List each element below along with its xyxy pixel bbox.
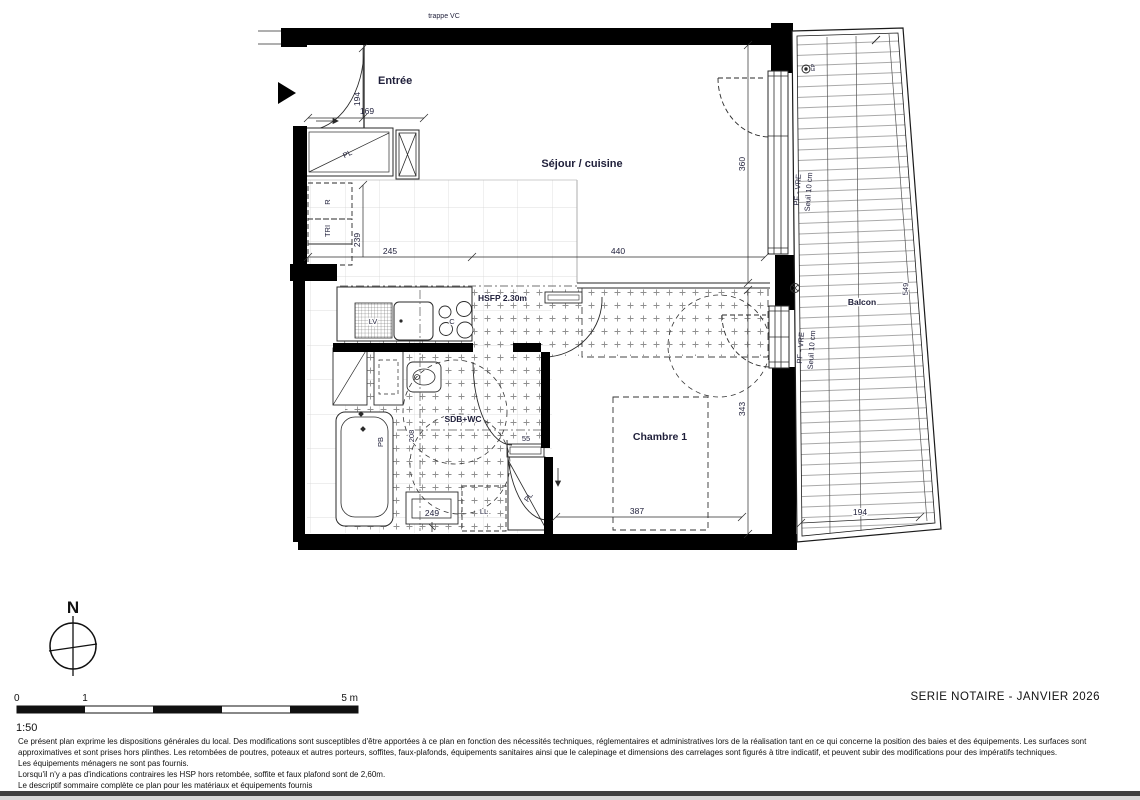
balcony-deck xyxy=(797,33,935,536)
wall-bathroom-east xyxy=(541,352,550,448)
disclaimer: Ce présent plan exprime les dispositions… xyxy=(18,737,1087,790)
scale-ratio: 1:50 xyxy=(16,722,37,734)
dim-440: 440 xyxy=(611,246,625,256)
cooktop-label: C xyxy=(449,317,455,326)
wall-east-pillar-top xyxy=(771,23,793,73)
scale-bar: 0 1 5 m 1:50 xyxy=(14,693,358,734)
dim-239: 239 xyxy=(352,233,362,247)
room-label-chambre: Chambre 1 xyxy=(633,431,687,443)
scale-5m: 5 m xyxy=(341,693,358,704)
north-compass xyxy=(49,616,97,676)
floor-plan-canvas: trappe VC Entrée Séjour / cuisine SDB+WC… xyxy=(0,0,1140,800)
balcony xyxy=(791,28,942,542)
window-chambre xyxy=(769,306,789,368)
page-edge-bar xyxy=(0,791,1140,796)
disclaimer-line-4: Lorsqu'il n'y a pas d'indications contra… xyxy=(18,770,385,779)
tri-label: TRI xyxy=(323,225,332,237)
washing-machine-label: LL xyxy=(480,507,488,516)
washbasin-cabinet xyxy=(374,348,403,405)
wall-west-upper xyxy=(293,126,307,277)
dim-194-balcon: 194 xyxy=(853,507,867,517)
dim-360: 360 xyxy=(737,157,747,171)
dim-208: 208 xyxy=(407,430,416,443)
wall-south xyxy=(298,534,797,550)
wall-north xyxy=(293,28,775,45)
wall-bathroom-north-1 xyxy=(333,343,473,352)
dim-387: 387 xyxy=(630,506,644,516)
dim-343: 343 xyxy=(737,402,747,416)
wall-west-lower xyxy=(293,277,305,542)
north-label: N xyxy=(67,598,79,617)
bedroom-entry-arrow xyxy=(556,468,561,486)
room-label-sejour: Séjour / cuisine xyxy=(541,158,622,170)
kitchen-counter xyxy=(337,287,473,341)
bathtub-label: PB xyxy=(376,437,385,447)
toilet xyxy=(407,362,441,392)
ep-label: EP xyxy=(811,63,817,71)
dim-169: 169 xyxy=(360,106,374,116)
wall-cut-lines xyxy=(258,31,281,44)
shelf-55 xyxy=(507,444,544,457)
series-title: SERIE NOTAIRE - JANVIER 2026 xyxy=(910,691,1100,703)
floor-plan-page: trappe VC Entrée Séjour / cuisine SDB+WC… xyxy=(0,0,1140,800)
disclaimer-line-5: Le descriptif sommaire complète ce plan … xyxy=(18,781,312,790)
fridge-label: R xyxy=(323,199,332,205)
dishwasher-label: LV xyxy=(369,317,378,326)
scale-1: 1 xyxy=(82,693,88,704)
disclaimer-line-3: Les équipements ménagers ne sont pas fou… xyxy=(18,759,189,768)
dim-249: 249 xyxy=(425,508,439,518)
bedroom-door-leaf xyxy=(545,292,582,303)
room-label-sdb: SDB+WC xyxy=(444,414,481,424)
entrance-arrow xyxy=(278,82,296,104)
entry-direction-arrow xyxy=(316,119,338,124)
room-label-entree: Entrée xyxy=(378,75,412,87)
wall-east-lower xyxy=(772,367,796,534)
dim-245: 245 xyxy=(383,246,397,256)
bathtub xyxy=(336,411,393,526)
room-label-balcon: Balcon xyxy=(848,297,876,307)
disclaimer-line-2: approximatives et sont prises hors plint… xyxy=(18,748,1057,757)
dim-549: 549 xyxy=(901,283,910,296)
disclaimer-line-1: Ce présent plan exprime les dispositions… xyxy=(18,737,1087,746)
bed-outline xyxy=(613,397,708,530)
scale-0: 0 xyxy=(14,693,20,704)
wall-bathroom-north-2 xyxy=(513,343,541,352)
technical-duct xyxy=(396,130,419,179)
trappe-vc-label: trappe VC xyxy=(428,13,460,20)
wall-closet-east xyxy=(544,457,553,534)
dim-55: 55 xyxy=(522,434,530,443)
window-sejour xyxy=(768,71,788,254)
hsfp-label: HSFP 2.30m xyxy=(478,293,527,303)
page-edge-shadow xyxy=(0,796,1140,800)
dim-194-entree: 194 xyxy=(352,92,362,106)
